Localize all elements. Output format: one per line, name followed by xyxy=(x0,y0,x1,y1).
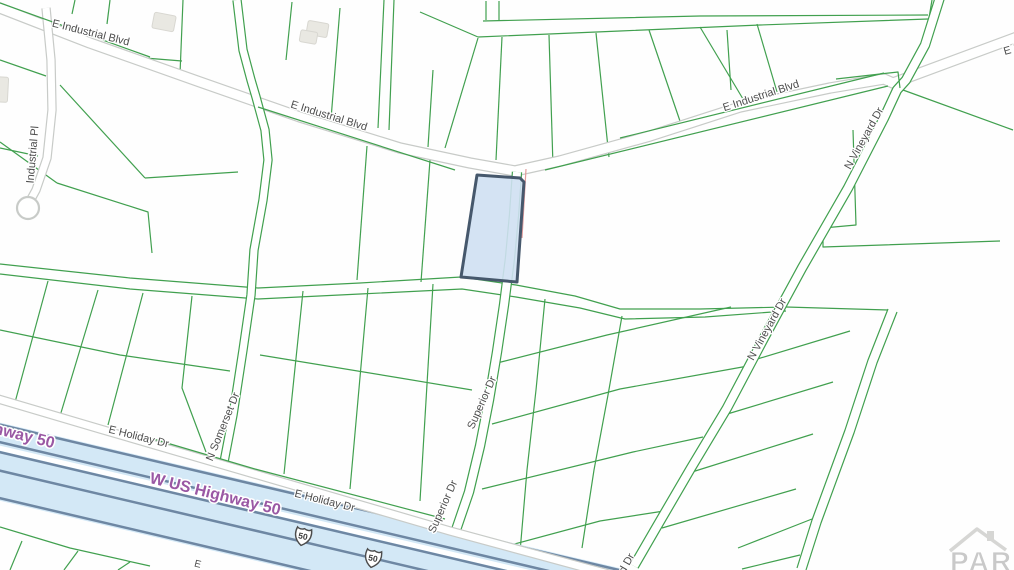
building-footprint xyxy=(152,12,177,32)
cul-de-sac xyxy=(17,197,39,219)
parcel-map-canvas[interactable]: 5050E Industrial BlvdE Industrial BlvdE … xyxy=(0,0,1014,570)
building-footprint xyxy=(0,77,9,103)
map-viewport[interactable]: 5050E Industrial BlvdE Industrial BlvdE … xyxy=(0,0,1014,570)
building-footprint xyxy=(299,30,318,45)
